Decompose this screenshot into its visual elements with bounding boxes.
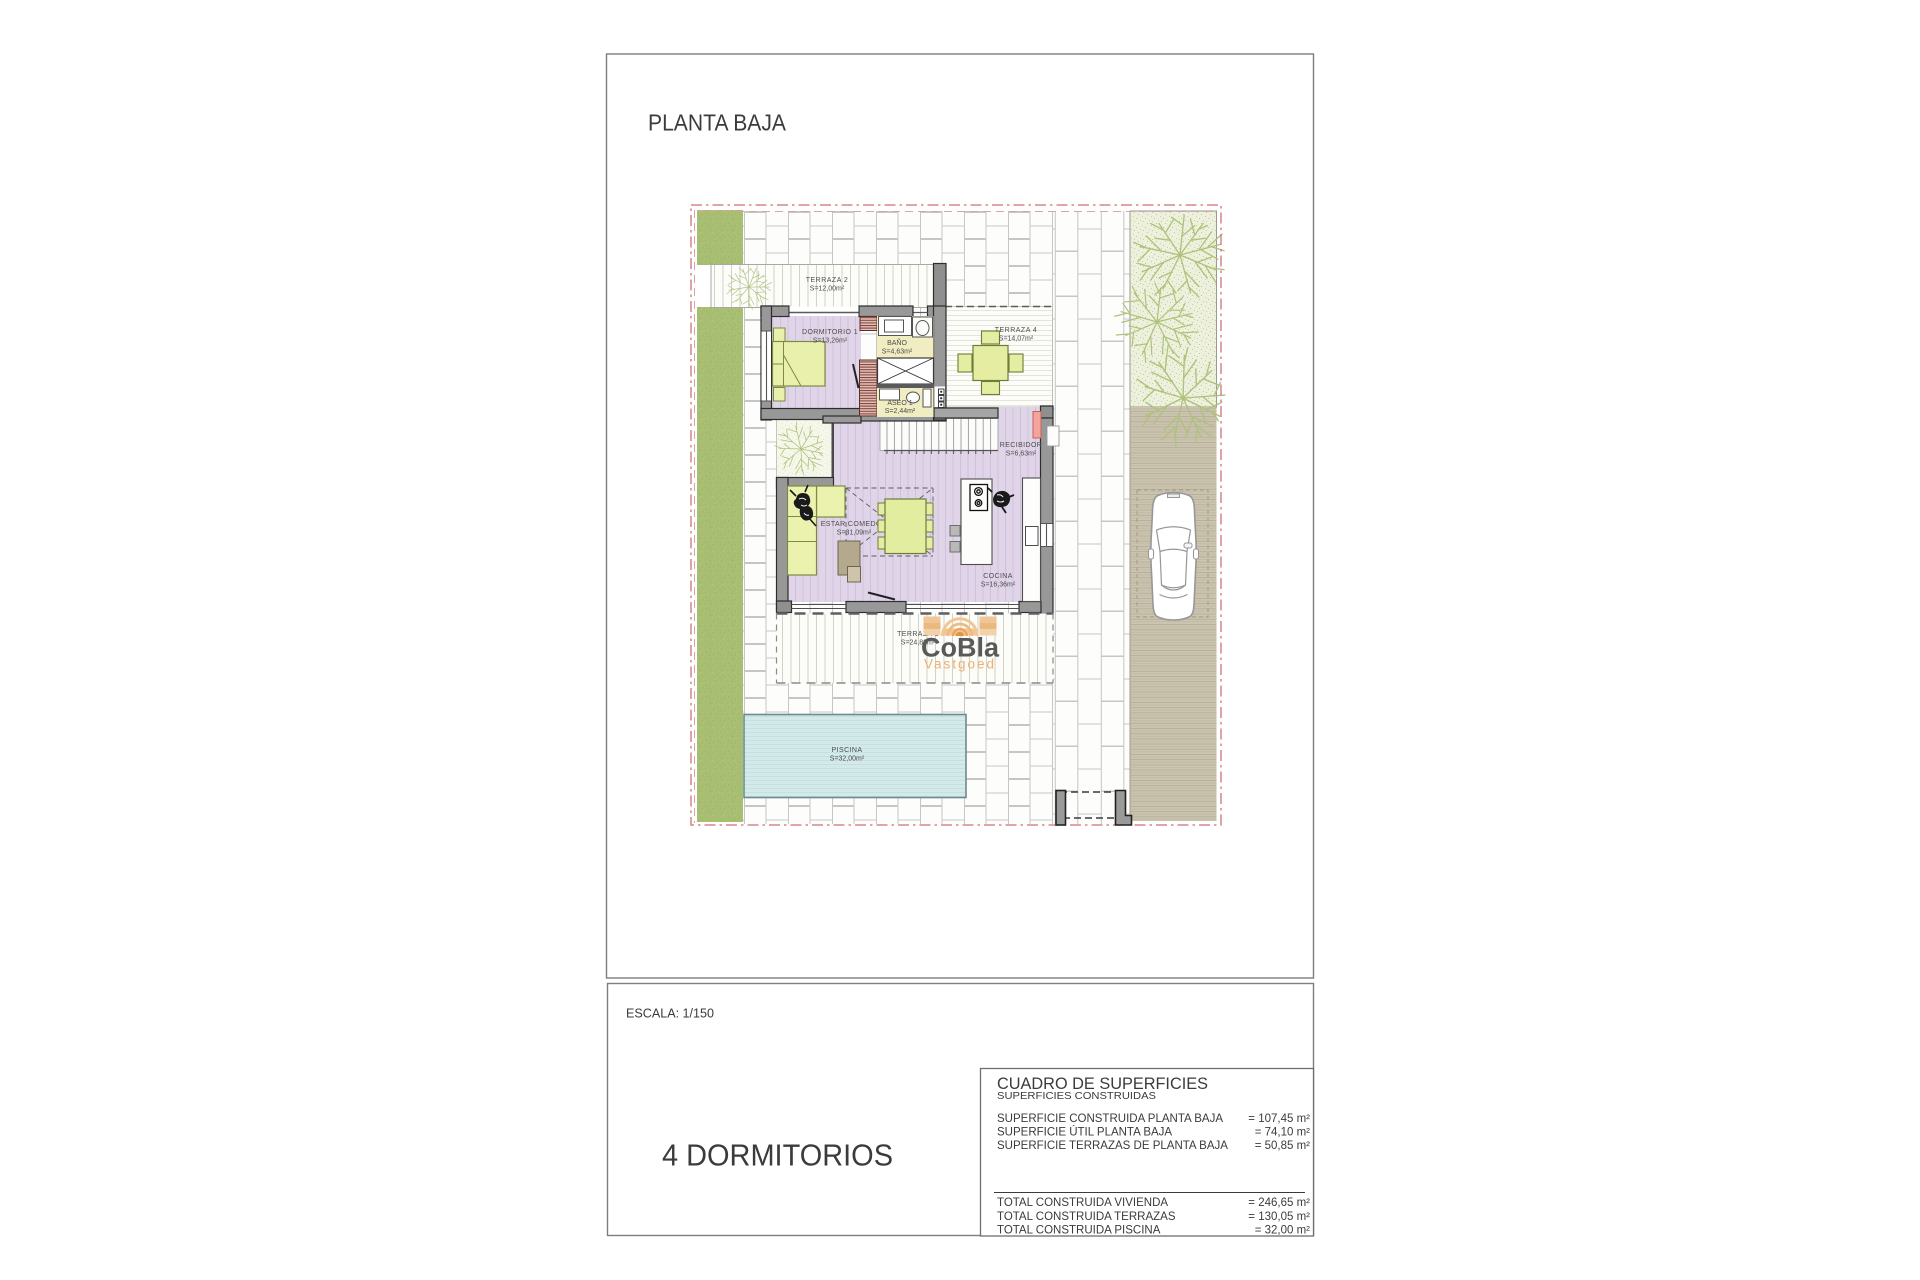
svg-text:COCINA: COCINA — [983, 573, 1013, 580]
svg-text:S=31,09m²: S=31,09m² — [837, 530, 872, 537]
svg-text:TOTAL CONSTRUIDA PISCINA: TOTAL CONSTRUIDA PISCINA — [997, 1225, 1161, 1237]
svg-text:SUPERFICIE TERRAZAS DE PLANTA: SUPERFICIE TERRAZAS DE PLANTA BAJA — [997, 1140, 1228, 1152]
svg-text:PLANTA BAJA: PLANTA BAJA — [648, 110, 786, 136]
svg-text:S=13,26m²: S=13,26m² — [813, 338, 848, 345]
svg-text:= 74,10 m²: = 74,10 m² — [1255, 1127, 1310, 1139]
svg-text:SUPERFICIES CONSTRUIDAS: SUPERFICIES CONSTRUIDAS — [997, 1091, 1156, 1102]
svg-text:= 50,85 m²: = 50,85 m² — [1255, 1140, 1310, 1152]
svg-text:S=6,63m²: S=6,63m² — [1006, 451, 1037, 458]
svg-text:S=4,63m²: S=4,63m² — [882, 349, 913, 356]
svg-text:Vastgoed: Vastgoed — [924, 657, 996, 672]
svg-text:= 130,05 m²: = 130,05 m² — [1248, 1211, 1310, 1223]
svg-text:= 107,45 m²: = 107,45 m² — [1248, 1113, 1310, 1125]
svg-text:ESCALA: 1/150: ESCALA: 1/150 — [626, 1006, 714, 1021]
svg-text:ASEO 1: ASEO 1 — [887, 400, 912, 407]
svg-text:S=2,44m²: S=2,44m² — [885, 408, 916, 415]
svg-text:RECIBIDOR: RECIBIDOR — [1000, 442, 1043, 449]
svg-text:= 246,65 m²: = 246,65 m² — [1248, 1197, 1310, 1209]
svg-text:SUPERFICIE CONSTRUIDA PLANTA B: SUPERFICIE CONSTRUIDA PLANTA BAJA — [997, 1113, 1223, 1125]
svg-text:TERRAZA 4: TERRAZA 4 — [995, 327, 1038, 334]
svg-text:BAÑO: BAÑO — [887, 338, 907, 347]
svg-text:= 32,00 m²: = 32,00 m² — [1255, 1225, 1310, 1237]
svg-text:TOTAL CONSTRUIDA TERRAZAS: TOTAL CONSTRUIDA TERRAZAS — [997, 1211, 1176, 1223]
svg-text:TERRAZA 2: TERRAZA 2 — [806, 277, 849, 284]
svg-text:S=16,36m²: S=16,36m² — [981, 582, 1016, 589]
svg-text:DORMITORIO 1: DORMITORIO 1 — [802, 329, 858, 336]
svg-text:TOTAL CONSTRUIDA VIVIENDA: TOTAL CONSTRUIDA VIVIENDA — [997, 1197, 1168, 1209]
svg-text:SUPERFICIE ÚTIL PLANTA BAJA: SUPERFICIE ÚTIL PLANTA BAJA — [997, 1126, 1172, 1139]
svg-text:S=12,00m²: S=12,00m² — [810, 286, 845, 293]
svg-text:PISCINA: PISCINA — [832, 747, 863, 754]
svg-text:S=14,07m²: S=14,07m² — [999, 336, 1034, 343]
svg-text:ESTAR COMEDOR: ESTAR COMEDOR — [821, 521, 888, 528]
svg-text:S=32,00m²: S=32,00m² — [830, 756, 865, 763]
svg-text:4 DORMITORIOS: 4 DORMITORIOS — [662, 1139, 893, 1173]
